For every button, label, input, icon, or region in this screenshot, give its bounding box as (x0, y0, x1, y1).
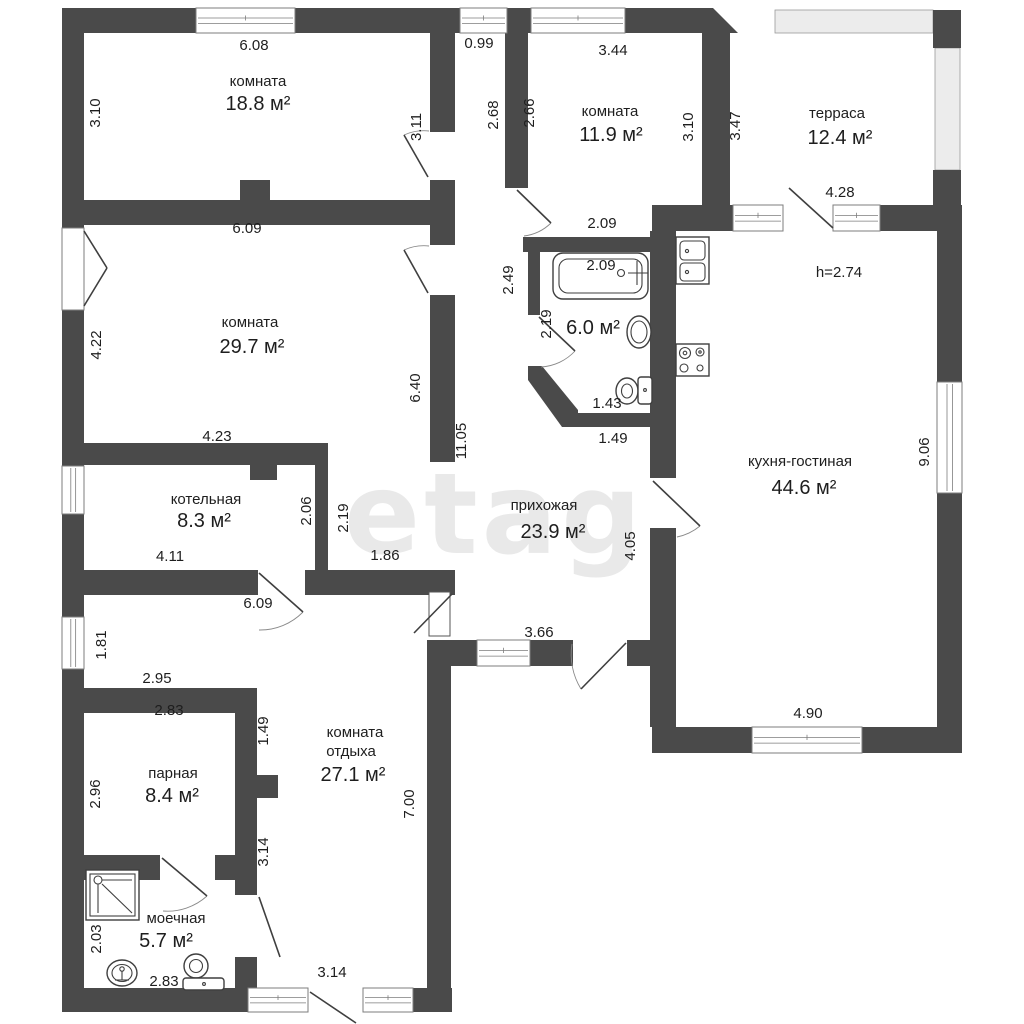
dim-bedroom2-left: 2.66 (521, 98, 538, 127)
room-label-bedroom2: комната (582, 103, 639, 120)
wall (257, 775, 278, 798)
window (62, 228, 84, 310)
door-swing-arc (524, 223, 551, 236)
ceiling-height: h=2.74 (816, 264, 862, 281)
dim-bedroom1-left: 3.10 (87, 98, 104, 127)
door-swing-arc (541, 351, 575, 367)
dim-corridor-left: 2.68 (485, 100, 502, 129)
dim-lounge-right: 7.00 (401, 789, 418, 818)
dim-nook-bottom: 1.86 (370, 547, 399, 564)
dim-kitchen-bottom: 4.90 (793, 705, 822, 722)
door-opening (429, 245, 456, 295)
room-label-kitchen: кухня-гостиная (748, 453, 852, 470)
room-label-washroom: моечная (146, 910, 205, 927)
door-swing-arc (404, 246, 429, 250)
wall (523, 237, 655, 252)
terrace-open-edge (775, 10, 933, 33)
wall (933, 170, 961, 210)
dim-washroom-bottom: 2.83 (149, 973, 178, 990)
dim-sauna-left: 2.96 (87, 779, 104, 808)
room-label-hallway: прихожая (511, 497, 578, 514)
washroom-toilet-icon (183, 954, 224, 990)
door-swing (404, 250, 428, 293)
wall (713, 8, 738, 33)
dim-lounge-bottom: 3.14 (317, 964, 346, 981)
wall (528, 243, 540, 315)
area-hallway: 23.9 м² (521, 521, 586, 543)
door-opening (650, 478, 676, 528)
wall (430, 8, 455, 462)
wall (427, 640, 451, 1012)
area-bathroom: 6.0 м² (566, 317, 620, 339)
dim-lounge-notch: 1.49 (255, 716, 272, 745)
wall (250, 465, 277, 480)
dim-bath-outer: 2.49 (500, 265, 517, 294)
dim-lounge-top: 6.09 (243, 595, 272, 612)
floor-plan: etagi (0, 0, 1024, 1024)
kitchen-sink-icon (676, 237, 709, 284)
washroom-sink-icon (107, 960, 137, 986)
wall (235, 688, 257, 860)
dim-bathtub: 2.09 (586, 257, 615, 274)
area-terrace: 12.4 м² (808, 127, 873, 149)
dim-boiler-right: 2.06 (298, 496, 315, 525)
wall (315, 443, 328, 590)
door-swing (259, 897, 280, 957)
dim-corridor-top: 0.99 (464, 35, 493, 52)
dim-sauna-top: 2.83 (154, 702, 183, 719)
terrace-open-edge (935, 48, 960, 170)
dim-bedroom3-top: 6.09 (232, 220, 261, 237)
dim-washroom-left: 2.03 (88, 924, 105, 953)
dim-bedroom1-top: 6.08 (239, 37, 268, 54)
area-kitchen: 44.6 м² (772, 477, 837, 499)
area-sauna: 8.4 м² (145, 785, 199, 807)
dim-terrace-bottom: 4.28 (825, 184, 854, 201)
door-swing (84, 268, 107, 306)
dim-boiler-top: 4.23 (202, 428, 231, 445)
area-boiler: 8.3 м² (177, 510, 231, 532)
area-lounge: 27.1 м² (321, 764, 386, 786)
area-bedroom3: 29.7 м² (220, 336, 285, 358)
wall (240, 180, 270, 202)
bathroom-sink-icon (627, 316, 651, 348)
room-label-lounge-2: отдыха (326, 743, 376, 760)
door-opening (160, 855, 215, 880)
floor-plan-svg: etagi (0, 0, 1024, 1024)
wall (933, 10, 961, 48)
area-bedroom1: 18.8 м² (226, 93, 291, 115)
dim-bedroom2-right: 3.10 (680, 112, 697, 141)
door-swing (517, 190, 551, 223)
door-swing-arc (259, 612, 303, 630)
room-label-bedroom3: комната (222, 314, 279, 331)
room-label-boiler: котельная (171, 491, 242, 508)
dim-bedroom3-left: 4.22 (88, 330, 105, 359)
window (62, 617, 84, 669)
dim-bedroom2-top: 3.44 (598, 42, 627, 59)
dim-bedroom3-right: 6.40 (407, 373, 424, 402)
wall (62, 443, 328, 465)
door-opening (258, 570, 305, 595)
dim-sauna-outer: 2.95 (142, 670, 171, 687)
dim-bath-bottom: 1.43 (592, 395, 621, 412)
dim-bath-left: 2.19 (538, 309, 555, 338)
window (937, 382, 962, 493)
door-opening (429, 132, 456, 180)
room-label-sauna: парная (148, 765, 198, 782)
door-opening (235, 895, 257, 957)
dim-nook-left: 2.19 (335, 503, 352, 532)
stove-icon (676, 344, 709, 376)
room-label-terrace: терраса (809, 105, 866, 122)
wall (702, 33, 730, 205)
dim-bath-below: 1.49 (598, 430, 627, 447)
dim-bedroom1-right: 3.11 (408, 113, 425, 141)
dim-kitchen-right: 9.06 (916, 437, 933, 466)
room-label-lounge-1: комната (327, 724, 384, 741)
door-swing (84, 231, 107, 268)
area-washroom: 5.7 м² (139, 930, 193, 952)
dim-hallway-right: 4.05 (622, 531, 639, 560)
dim-hall-window: 1.81 (93, 630, 110, 659)
dim-sauna-right: 3.14 (255, 837, 272, 866)
dim-hallway-bottom: 3.66 (524, 624, 553, 641)
area-bedroom2: 11.9 м² (579, 124, 643, 146)
dim-hallway-left: 11.05 (453, 423, 470, 459)
dim-terrace-left: 3.47 (727, 111, 744, 140)
dim-bedroom2-bottom: 2.09 (587, 215, 616, 232)
shower-icon (86, 870, 139, 920)
room-label-bedroom1: комната (230, 73, 287, 90)
door-swing-arc (163, 896, 207, 911)
wall (528, 366, 578, 427)
door-opening (573, 640, 627, 666)
dim-boiler-bottom: 4.11 (156, 548, 184, 565)
window (62, 466, 84, 514)
